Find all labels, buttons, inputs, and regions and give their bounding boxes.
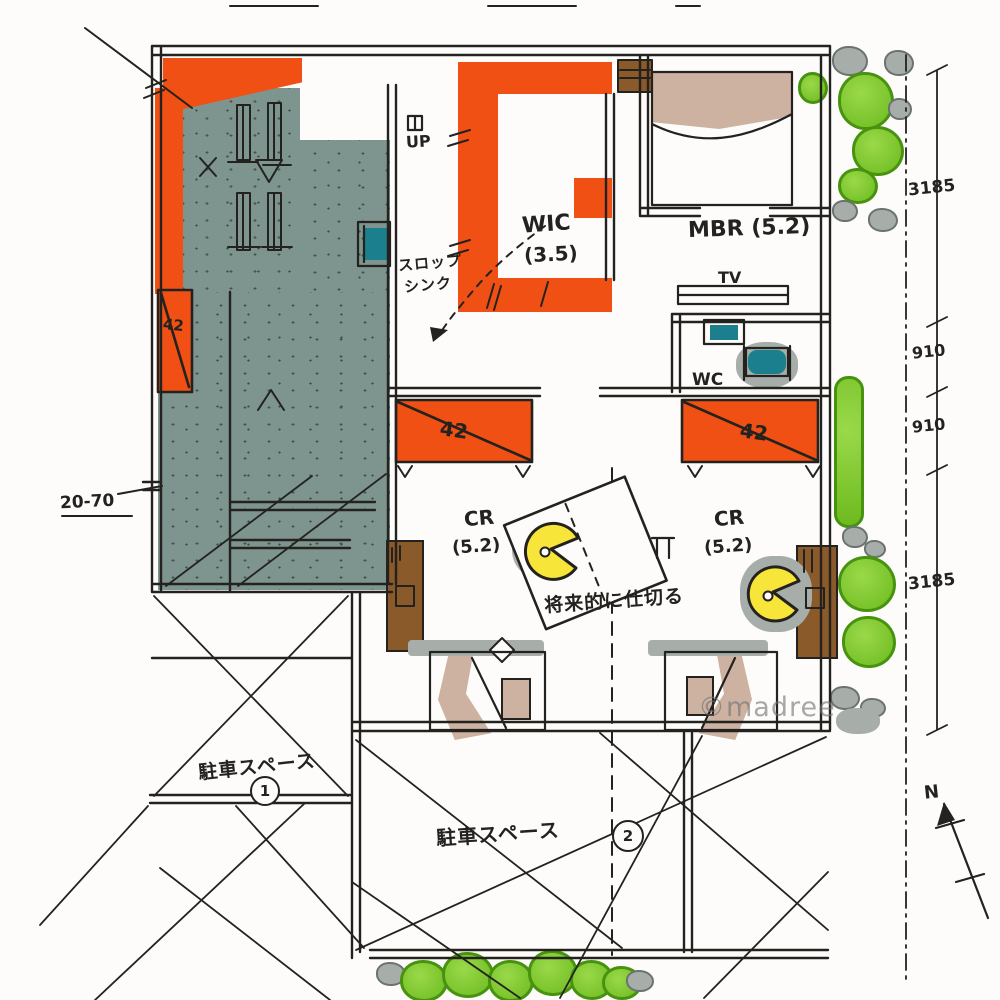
dim-910-a: 910 bbox=[911, 340, 946, 362]
chair-left-dot bbox=[541, 548, 550, 557]
parking2-number: 2 bbox=[612, 820, 644, 852]
floor-plan: UP スロップ シンク WIC (3.5) MBR (5.2) TV WC 42… bbox=[0, 0, 1000, 1000]
entry-diagonals bbox=[166, 474, 386, 586]
north-label: N bbox=[923, 781, 940, 803]
linework bbox=[0, 0, 1000, 1000]
dim-910-b: 910 bbox=[911, 414, 946, 436]
cr-right-size: (5.2) bbox=[703, 534, 753, 558]
up-label: UP bbox=[406, 131, 432, 151]
sketch-diagonals-left bbox=[40, 803, 364, 1000]
cr-right-label: CR bbox=[713, 505, 745, 532]
tv-label: TV bbox=[718, 268, 741, 287]
door-marks bbox=[398, 466, 820, 477]
entry-arc bbox=[441, 226, 545, 332]
entry-arrowhead bbox=[430, 327, 448, 342]
dimension-line bbox=[927, 65, 947, 735]
closet-left-label: 42 bbox=[438, 416, 469, 444]
mbr-label: MBR (5.2) bbox=[688, 214, 811, 243]
cr-left-size: (5.2) bbox=[451, 534, 501, 558]
wic-size: (3.5) bbox=[523, 241, 578, 268]
closet-left-strip-label: 42 bbox=[162, 315, 185, 335]
left-dim-label: 20-70 bbox=[60, 491, 115, 514]
closet-right-label: 42 bbox=[738, 418, 769, 446]
mbr-bed-outline bbox=[652, 72, 792, 205]
cr-left-label: CR bbox=[463, 505, 495, 532]
wic-label: WIC bbox=[521, 210, 571, 238]
leader-lines bbox=[62, 28, 192, 516]
chair-right-dot bbox=[764, 592, 773, 601]
wc-label: WC bbox=[692, 370, 723, 390]
chair-right bbox=[748, 567, 799, 621]
slop-sink-label-2: シンク bbox=[403, 272, 453, 297]
watermark: ©madree bbox=[698, 692, 836, 723]
parking1-number: 1 bbox=[250, 776, 280, 806]
doma-racks bbox=[200, 103, 292, 410]
tv-board bbox=[678, 286, 788, 304]
diamond bbox=[490, 638, 514, 662]
